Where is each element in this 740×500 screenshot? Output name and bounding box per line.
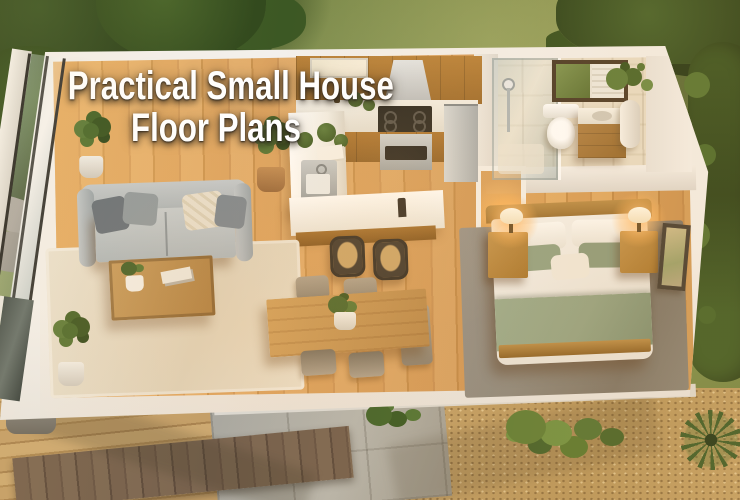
shrub — [506, 410, 546, 444]
title-overlay: Practical Small House Floor Plans — [26, 66, 406, 149]
toilet — [543, 104, 579, 152]
wall-art-frame — [657, 223, 691, 291]
bathroom-planter-vase — [620, 100, 640, 148]
bar-stool — [372, 238, 408, 280]
throw-pillow — [122, 191, 159, 226]
island-sink — [301, 160, 337, 200]
throw-pillow — [214, 194, 248, 229]
potted-plant — [48, 318, 94, 386]
coffee-table — [109, 255, 216, 320]
shrub — [366, 404, 392, 426]
lamp-stem — [637, 222, 641, 232]
plant-leaves — [121, 261, 138, 276]
dining-chair — [348, 351, 385, 378]
dining-chair — [300, 349, 337, 376]
plant-pot — [79, 156, 103, 178]
bar-stool — [329, 235, 365, 277]
plant-pot — [257, 167, 285, 192]
centerpiece-pot — [334, 312, 356, 330]
shower-tray — [498, 144, 544, 174]
shower-rail — [507, 88, 510, 132]
books — [160, 266, 192, 284]
bedside-lamp — [498, 206, 525, 236]
refrigerator — [444, 104, 478, 182]
lamp-shade — [628, 207, 651, 223]
toilet-tank — [543, 104, 579, 118]
plant-pot — [58, 362, 84, 386]
title-line-2: Floor Plans — [68, 108, 364, 150]
wine-bottle — [398, 198, 407, 217]
title-line-1: Practical Small House — [68, 66, 364, 108]
accent-cushion — [550, 252, 590, 281]
plant-leaves — [62, 323, 78, 339]
window-pane-garden — [556, 64, 590, 98]
bedside-lamp — [626, 205, 651, 233]
floor-plan-render-scene: Practical Small House Floor Plans — [0, 0, 740, 500]
lamp-shade — [500, 208, 523, 224]
bathroom-vanity — [578, 108, 626, 158]
plant-pot — [125, 275, 144, 292]
bathroom-plant-leaves — [606, 68, 628, 90]
toilet-bowl — [547, 117, 575, 149]
lamp-stem — [509, 223, 513, 233]
